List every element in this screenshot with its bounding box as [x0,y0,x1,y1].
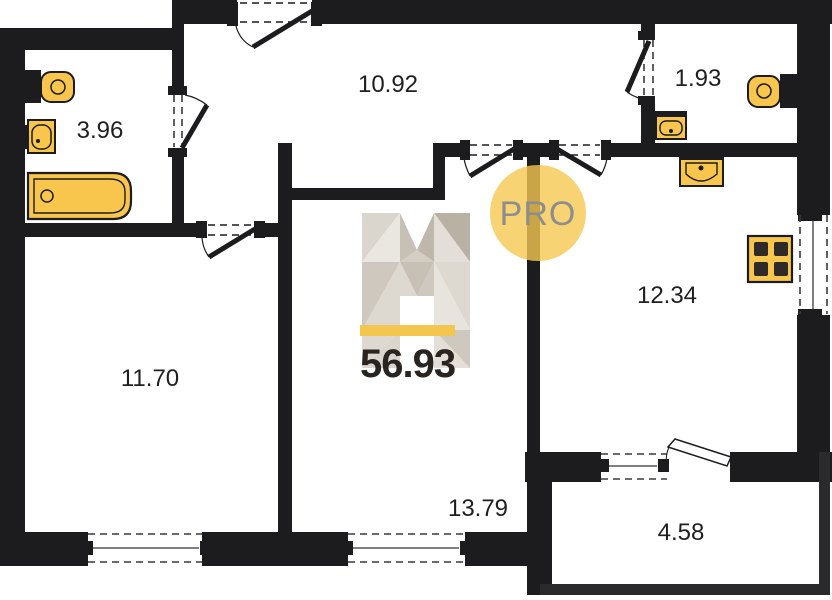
window-bedroom [88,534,202,562]
toilet-icon-wc [748,74,797,108]
door-entrance [236,3,312,47]
door-wc [627,40,653,99]
pro-badge: PRO [490,165,586,261]
door-bedroom [202,225,255,257]
logo-accent-bar [360,325,455,336]
pro-badge-label: PRO [500,195,577,233]
door-balcony [666,439,731,470]
door-living [464,145,514,176]
stove-icon [748,236,792,282]
room-area-hallway: 10.92 [358,71,418,98]
window-balcony [601,454,667,479]
door-bathroom [174,95,207,148]
sink-icon [25,120,55,153]
sink-icon-kitchen [680,156,723,186]
toilet-icon [25,70,74,103]
room-area-bathroom: 3.96 [77,117,124,144]
room-area-kitchen-living: 12.34 [637,282,697,309]
door-kitchen [557,145,607,175]
room-area-bedroom: 11.70 [121,365,179,392]
total-area-label: 56.93 [360,342,455,386]
floor-plan-page: 3.96 10.92 1.93 11.70 12.34 13.79 4.58 5… [0,0,832,600]
room-area-wc: 1.93 [675,65,722,92]
sink-icon-wc [656,112,686,139]
window-living [348,534,464,562]
bathtub-icon [28,173,131,219]
room-area-living: 13.79 [448,495,508,522]
room-area-balcony: 4.58 [658,519,705,546]
window-kitchen [800,215,827,314]
floor-plan: 3.96 10.92 1.93 11.70 12.34 13.79 4.58 5… [0,0,832,600]
